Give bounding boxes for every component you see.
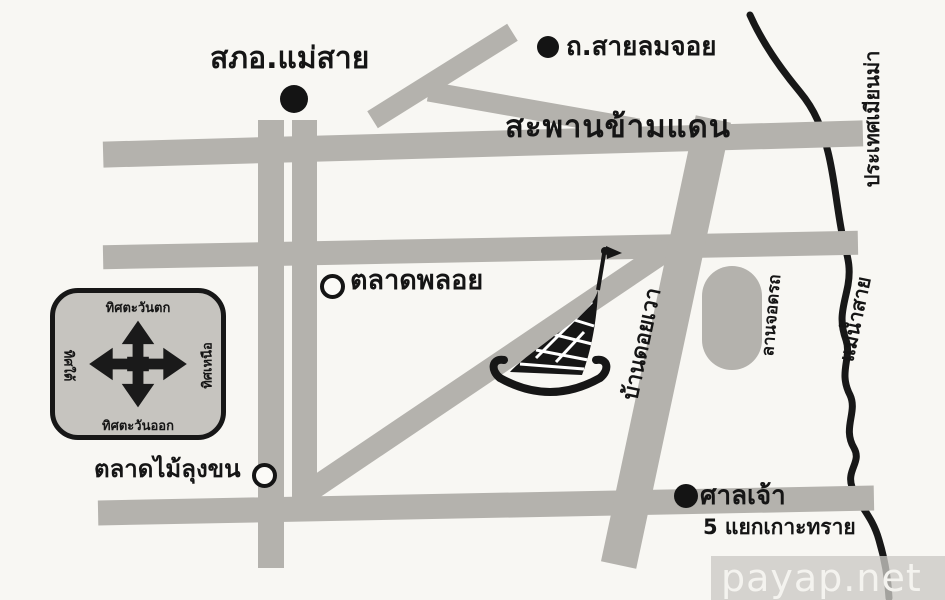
maesai-map-canvas: สภอ.แม่สาย ถ.สายลมจอย สะพานข้ามแดน ตลาดพ… <box>0 0 945 600</box>
mai-lung-khon-market-ring <box>252 463 277 488</box>
road-vertical-west-1 <box>258 120 284 568</box>
parking-area <box>702 266 762 370</box>
compass-label-left: ทิศใต้ <box>59 336 80 396</box>
label-shrine: ศาลเจ้า <box>700 482 786 511</box>
doi-wao-pagoda-icon <box>480 240 630 410</box>
road-vertical-west-2 <box>292 120 317 510</box>
compass-label-top: ทิศตะวันตก <box>55 297 221 318</box>
watermark-text: payap.net <box>711 556 945 600</box>
label-border-bridge: สะพานข้ามแดน <box>505 110 731 144</box>
label-koh-sai-junction: 5 แยกเกาะทราย <box>703 516 856 539</box>
compass-arrows-icon <box>83 317 193 411</box>
label-myanmar-country: ประเทศเมียนม่า <box>861 19 883 219</box>
compass-label-right: ทิศเหนือ <box>197 336 218 396</box>
label-ploy-market: ตลาดพลอย <box>350 266 483 296</box>
compass-label-bottom: ทิศตะวันออก <box>55 415 221 436</box>
sai-lom-joy-dot <box>537 36 559 58</box>
label-mai-lung-khon-market: ตลาดไม้ลุงขน <box>94 456 240 482</box>
police-station-dot <box>280 85 308 113</box>
shrine-dot <box>674 484 698 508</box>
watermark-band: payap.net <box>711 556 945 600</box>
label-sai-lom-joy-road: ถ.สายลมจอย <box>566 33 716 62</box>
label-police-station: สภอ.แม่สาย <box>210 42 369 75</box>
compass-panel: ทิศตะวันตก ทิศตะวันออก ทิศใต้ ทิศเหนือ <box>50 288 226 440</box>
ploy-market-ring <box>320 274 345 299</box>
